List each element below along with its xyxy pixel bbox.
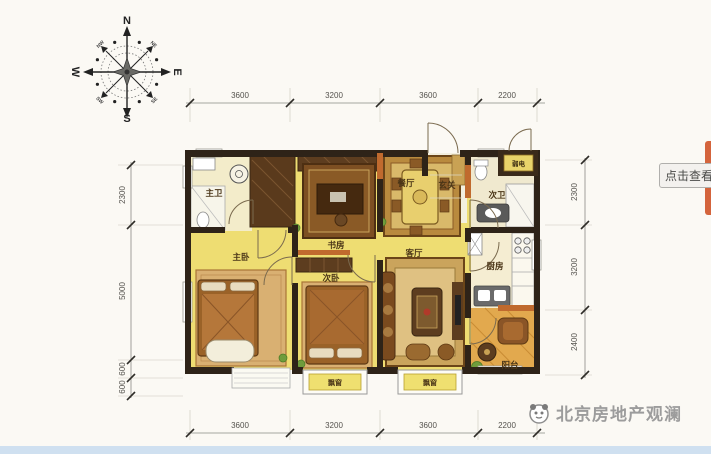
- toilet-icon: [197, 212, 209, 228]
- dining-furniture: [378, 156, 460, 236]
- dim-left-1: 2300: [118, 186, 127, 204]
- view-more-button[interactable]: 点击查看: [659, 163, 711, 188]
- bay-window-2: 飘窗: [398, 370, 462, 394]
- dim-left-3: 600: [118, 362, 127, 376]
- plant-icon: [279, 354, 287, 362]
- room-label-living-room: 客厅: [404, 248, 423, 258]
- dim-right-2: 3200: [570, 258, 579, 276]
- living-room-furniture: [381, 258, 464, 366]
- compass-rose: N S W E NE NW SE SW: [69, 15, 183, 125]
- dim-top-3: 3600: [419, 91, 437, 100]
- compass-west-label: W: [69, 67, 81, 78]
- watermark-logo-icon: [527, 401, 551, 425]
- counter-icon: [512, 233, 534, 307]
- dim-left-2: 5000: [118, 282, 127, 300]
- weak-current-box: 弱电: [498, 150, 538, 176]
- dim-bottom-4: 2200: [498, 421, 516, 430]
- dim-top-1: 3600: [231, 91, 249, 100]
- side-table-icon: [438, 344, 454, 360]
- room-label-master-bath: 主卫: [205, 188, 223, 198]
- watermark: 北京房地产观澜: [527, 400, 682, 425]
- dim-bottom-3: 3600: [419, 421, 437, 430]
- bench-icon: [206, 340, 254, 362]
- watermark-text: 北京房地产观澜: [556, 400, 682, 425]
- dim-right-3: 2400: [570, 333, 579, 351]
- washer-icon: [230, 165, 248, 183]
- dimensions-bottom: 3600 3200 3600 2200: [186, 410, 545, 440]
- room-label-entry: 玄关: [438, 180, 456, 190]
- room-label-bay-window: 飘窗: [423, 378, 437, 387]
- dim-top-2: 3200: [325, 91, 343, 100]
- dim-bottom-1: 3600: [231, 421, 249, 430]
- compass-east-label: E: [171, 68, 183, 75]
- dimensions-left: 2300 5000 600 600: [118, 161, 183, 400]
- room-label-second-bath: 次卫: [488, 190, 506, 200]
- armchair-icon: [406, 344, 430, 360]
- room-label-bay-window: 飘窗: [328, 378, 342, 387]
- plant-icon: [297, 360, 305, 368]
- room-label-dining: 餐厅: [396, 178, 415, 188]
- dim-bottom-2: 3200: [325, 421, 343, 430]
- compass-north-label: N: [123, 15, 131, 27]
- dimensions-top: 3600 3200 3600 2200: [186, 88, 545, 122]
- toilet-icon: [475, 164, 487, 180]
- room-label-master-bedroom: 主卧: [232, 252, 250, 262]
- bottom-scroll-strip[interactable]: [0, 446, 711, 454]
- second-bedroom-furniture: [297, 282, 372, 368]
- floorplan-drawing: N S W E NE NW SE SW 3600 3200 3600 2200: [0, 0, 711, 454]
- dim-right-1: 2300: [570, 183, 579, 201]
- study-furniture: [292, 164, 375, 238]
- compass-south-label: S: [123, 113, 130, 125]
- room-label-study: 书房: [327, 240, 344, 250]
- room-label-weak-current: 弱电: [512, 159, 526, 168]
- dim-left-4: 600: [118, 380, 127, 394]
- floorplan-page: N S W E NE NW SE SW 3600 3200 3600 2200: [0, 0, 711, 454]
- dimensions-right: 2300 3200 2400: [545, 156, 592, 379]
- master-bedroom-furniture: [196, 270, 287, 366]
- stove-icon: [515, 238, 521, 244]
- dim-top-4: 2200: [498, 91, 516, 100]
- bay-window-1: 飘窗: [303, 370, 367, 394]
- room-label-kitchen: 厨房: [486, 261, 503, 271]
- bay-windows: 飘窗 飘窗: [232, 368, 462, 394]
- chair-icon: [335, 214, 347, 226]
- room-label-second-bedroom: 次卧: [322, 273, 340, 283]
- room-label-balcony: 阳台: [501, 360, 519, 370]
